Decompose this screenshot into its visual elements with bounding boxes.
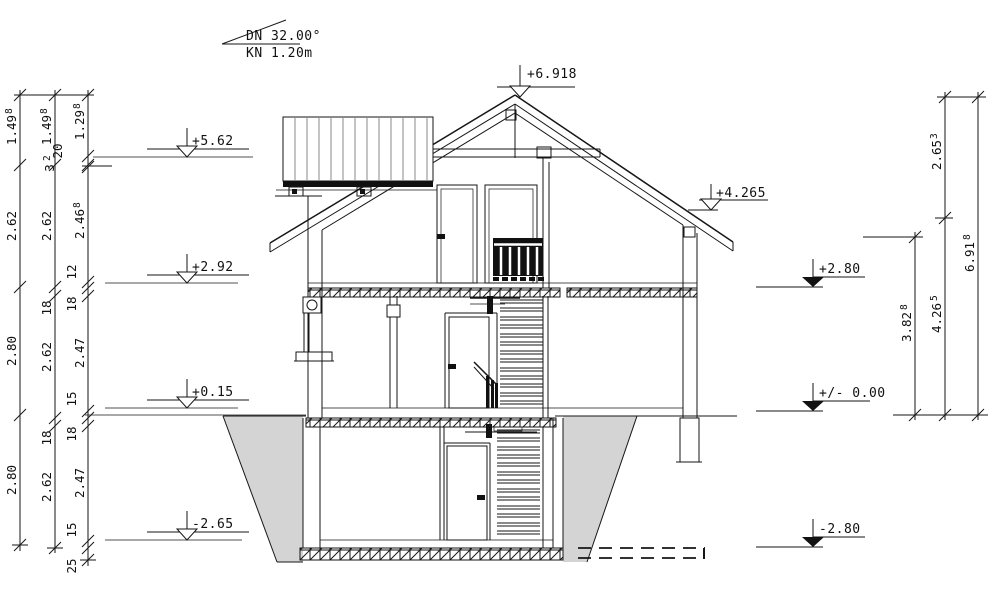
attic-floor-slab xyxy=(308,288,560,297)
foundation-slab xyxy=(300,548,563,560)
dim-label: 2.65 xyxy=(929,140,944,170)
dim-label: 2.62 xyxy=(39,342,54,372)
dim-sup: 8 xyxy=(72,103,83,109)
basement-door xyxy=(447,446,487,540)
elevation-marker-minus265: -2.65 xyxy=(105,511,249,540)
roof-overhang-label: KN 1.20m xyxy=(246,46,313,61)
right-dimension-chains: 3.82 8 2.65 3 4.26 5 6.91 8 xyxy=(863,91,988,421)
dim-label: 2.47 xyxy=(72,338,87,368)
interior-door xyxy=(449,317,489,408)
dim-label: 6.91 xyxy=(962,242,977,272)
dim-label: 4.26 xyxy=(929,303,944,333)
level-label: -2.65 xyxy=(192,517,234,532)
elevation-marker-plus4265: +4.265 xyxy=(688,184,768,210)
dim-label: 1.29 xyxy=(72,110,87,140)
dim-label: 2.47 xyxy=(72,468,87,498)
dim-label: 18 xyxy=(39,430,54,445)
dim-label: 3.82 xyxy=(899,312,914,342)
dim-sup: 8 xyxy=(72,202,83,208)
dim-label: 18 xyxy=(64,426,79,441)
dim-sup: 8 xyxy=(899,304,910,310)
dim-sup: 5 xyxy=(929,295,940,301)
purlin-right xyxy=(684,227,695,237)
dim-label: 12 xyxy=(64,264,79,279)
elevation-marker-minus280: -2.80 xyxy=(756,519,865,547)
dim-sup: 3 xyxy=(929,133,940,139)
level-label: +2.92 xyxy=(192,260,234,275)
ground-floor-slab xyxy=(306,418,556,427)
section-drawing: DN 32.00° KN 1.20m +6.918 +5.62 +2.92 +0… xyxy=(0,0,1000,594)
level-label: +2.80 xyxy=(819,262,861,277)
dim-label: 2.80 xyxy=(4,465,19,495)
right-foundation-block xyxy=(680,418,699,462)
dim-label: 18 xyxy=(64,296,79,311)
architectural-section-canvas: DN 32.00° KN 1.20m +6.918 +5.62 +2.92 +0… xyxy=(0,0,1000,594)
dim-label: 15 xyxy=(64,391,79,406)
floor-slabs xyxy=(300,288,697,560)
dim-sup: 8 xyxy=(4,108,15,114)
dim-label: 18 xyxy=(39,300,54,315)
elevation-marker-plus292: +2.92 xyxy=(105,254,249,283)
dim-label: 2.80 xyxy=(4,336,19,366)
balcony-railing xyxy=(275,117,438,196)
roof-pitch-annotation: DN 32.00° KN 1.20m xyxy=(222,20,321,61)
level-label: +0.15 xyxy=(192,385,234,400)
interior-door-handle xyxy=(448,364,456,369)
dim-label: 2.62 xyxy=(39,211,54,241)
dim-label: 15 xyxy=(64,522,79,537)
level-label: +5.62 xyxy=(192,134,234,149)
dim-label: 25 xyxy=(64,558,79,573)
wall-box xyxy=(387,305,400,317)
dim-label: 2.62 xyxy=(39,472,54,502)
level-label: +4.265 xyxy=(716,186,766,201)
dim-sup: 2 xyxy=(42,155,53,161)
level-label: -2.80 xyxy=(819,522,861,537)
console xyxy=(296,352,332,361)
basement-door-handle xyxy=(477,495,485,500)
upper-level xyxy=(294,296,683,408)
elevation-marker-plus280: +2.80 xyxy=(756,259,865,287)
elevation-marker-plus562: +5.62 xyxy=(93,128,253,157)
dim-label: 3 xyxy=(42,164,57,172)
dim-label: 2.62 xyxy=(4,211,19,241)
elevation-marker-plus015: +0.15 xyxy=(105,379,249,408)
attic-door-handle xyxy=(437,234,445,239)
attic-floor-slab-right xyxy=(567,288,697,297)
attic-level xyxy=(308,185,697,283)
vent-duct xyxy=(303,297,321,313)
level-label: +/- 0.00 xyxy=(819,386,886,401)
dim-label: 2.46 xyxy=(72,209,87,239)
roof-pitch-label: DN 32.00° xyxy=(246,29,321,44)
dim-label: 1.49 xyxy=(4,115,19,145)
ridge-level-label: +6.918 xyxy=(527,67,577,82)
left-dimension-chains: 1.49 8 2.62 2.80 2.80 1.49 8 2.62 18 2.6… xyxy=(4,89,112,574)
dim-label: 1.49 xyxy=(39,115,54,145)
elevation-marker-zero: +/- 0.00 xyxy=(756,383,886,411)
basement-level xyxy=(320,424,705,559)
dim-sup: 8 xyxy=(39,108,50,114)
elevation-marker-ridge: +6.918 xyxy=(497,65,577,97)
dim-sup: 8 xyxy=(962,234,973,240)
